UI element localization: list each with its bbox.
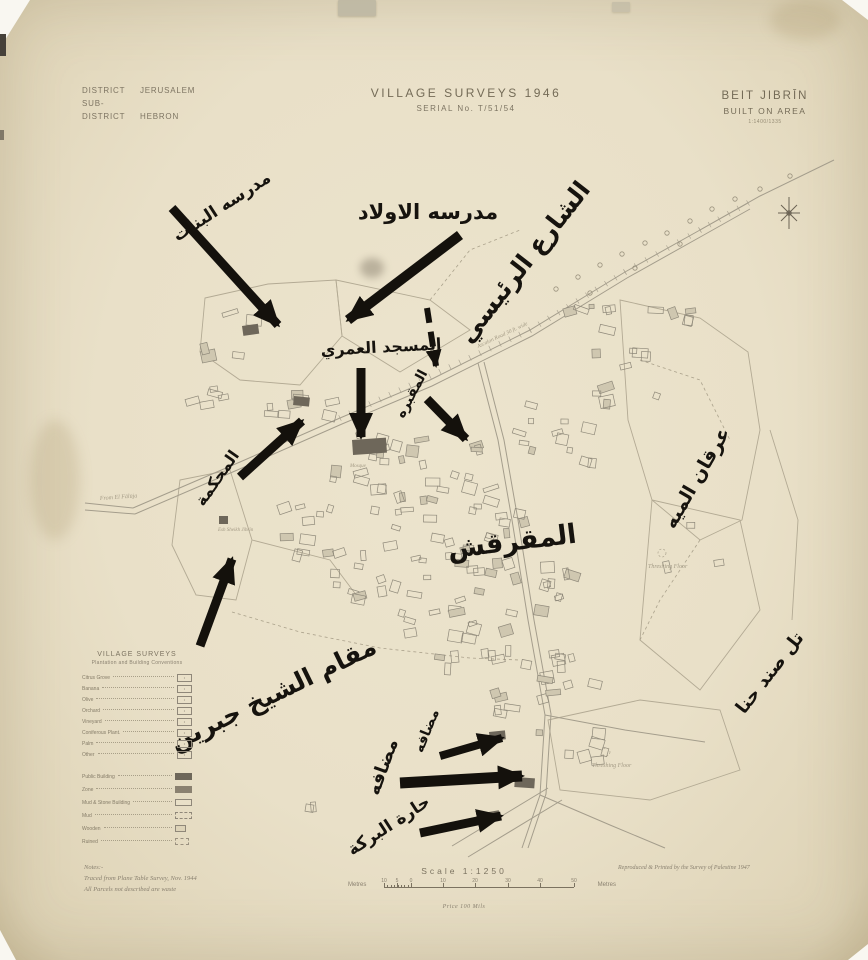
map-building [406, 445, 419, 458]
legend-row: Orchard• [82, 705, 192, 716]
legend-subtitle: Plantation and Building Conventions [82, 660, 192, 666]
map-building [620, 362, 632, 370]
map-building [429, 609, 440, 616]
road-tick [604, 281, 607, 286]
road-tick [699, 227, 702, 232]
map-building [267, 403, 273, 410]
map-building [444, 663, 451, 675]
arrow-madafa-2 [400, 776, 522, 783]
legend-leader [102, 687, 174, 688]
legend-row: Olive• [82, 694, 192, 705]
road-tick [645, 257, 648, 262]
map-building [333, 582, 340, 588]
annotation-boys-school: مدرسه الاولاد [358, 200, 498, 224]
legend-symbol: • [177, 740, 192, 748]
map-building [567, 447, 573, 453]
map-building [354, 563, 363, 570]
legend-swatch [175, 825, 186, 832]
arrow-cemetery [427, 399, 466, 439]
road-tick [399, 387, 402, 392]
scale-tick-label: 50 [571, 878, 577, 884]
map-building [521, 659, 532, 669]
legend-symbol: • [177, 751, 192, 759]
arrow-boys-school [348, 235, 460, 320]
scale-tick-label: 20 [472, 878, 478, 884]
legend-row: Coniferous Plant.• [82, 727, 192, 738]
map-building [498, 624, 513, 638]
map-building [455, 596, 466, 603]
scale-minor-tick [384, 885, 385, 888]
map-building [437, 486, 449, 493]
map-building [389, 580, 401, 593]
legend-swatch [175, 786, 192, 793]
scale-tick-label: 10 [381, 878, 387, 884]
legend-leader [123, 731, 174, 732]
map-building [419, 460, 427, 469]
price-note: Price 100 Mils [364, 904, 564, 910]
map-building [519, 440, 529, 446]
road-tick [656, 251, 659, 256]
map-building [543, 581, 551, 588]
legend-symbol: • [177, 707, 192, 715]
public-building [219, 516, 228, 524]
legend-symbol: • [177, 696, 192, 704]
legend-title: VILLAGE SURVEYS [82, 651, 192, 658]
map-building [510, 572, 521, 585]
map-building [404, 617, 416, 625]
map-building [629, 348, 636, 354]
legend-row: Wooden [82, 822, 192, 835]
map-building [419, 558, 426, 563]
map-building [581, 422, 597, 435]
map-building [471, 447, 482, 452]
map-building [383, 540, 398, 551]
map-building [528, 418, 533, 423]
map-building [714, 559, 724, 567]
scale-minor-tick [387, 885, 388, 888]
road-tick [666, 245, 669, 250]
map-building [360, 550, 366, 560]
road-tick [439, 369, 442, 374]
legend-leader [113, 676, 174, 677]
map-building [424, 575, 431, 580]
arrow-court [240, 421, 302, 477]
legend-row: Mud [82, 809, 192, 822]
map-building [483, 495, 500, 507]
legend-panel: VILLAGE SURVEYS Plantation and Building … [82, 651, 192, 848]
road-tick [595, 287, 598, 292]
map-label-sheikh-jibrin: Esh Sheikh Jibrīn [217, 528, 254, 533]
arrow-maqam [200, 559, 232, 646]
scale-bar-line: 10501020304050 [384, 886, 574, 888]
road-tick [624, 269, 627, 274]
map-building [322, 549, 333, 557]
legend-row-label: Other [82, 752, 95, 758]
map-building [464, 473, 473, 481]
legend-row-label: Wooden [82, 826, 101, 832]
map-building [685, 308, 696, 314]
printer-credit: Reproduced & Printed by the Survey of Pa… [618, 865, 750, 871]
public-building [293, 396, 310, 407]
map-building [333, 548, 347, 559]
map-building [376, 575, 386, 584]
map-building [592, 728, 606, 740]
legend-row-label: Olive [82, 697, 93, 703]
legend-row: Public Building [82, 770, 192, 783]
map-building [218, 394, 229, 401]
scale-unit-right: Metres [598, 882, 616, 888]
map-building [589, 304, 594, 308]
map-building [556, 433, 569, 446]
legend-row: Zone [82, 783, 192, 796]
map-building [563, 680, 573, 690]
map-building [423, 515, 436, 522]
map-building [483, 484, 499, 493]
legend-row-label: Public Building [82, 774, 115, 780]
tree-symbol [598, 263, 602, 267]
map-building [462, 480, 478, 495]
legend-row-label: Mud [82, 813, 92, 819]
map-building [450, 471, 459, 480]
legend-row-label: Zone [82, 787, 93, 793]
map-sheet: DISTRICTJERUSALEM SUB-DISTRICTHEBRON VIL… [0, 0, 868, 960]
legend-row: Ruined [82, 835, 192, 848]
road-tick [538, 322, 541, 327]
map-building [494, 705, 501, 715]
road-tick [688, 233, 691, 238]
map-building [420, 496, 427, 505]
map-building [568, 653, 575, 662]
legend-row: Palm• [82, 738, 192, 749]
threshing-floor-symbol [658, 549, 666, 557]
legend-leader [95, 814, 172, 815]
map-building [325, 397, 340, 406]
scale-tick-label: 30 [505, 878, 511, 884]
legend-leader [118, 775, 172, 776]
tree-symbol [788, 174, 792, 178]
legend-symbol: • [177, 718, 192, 726]
map-building [278, 410, 290, 418]
legend-leader [96, 698, 174, 699]
notes-line: All Parcels not described are waste [84, 884, 197, 895]
map-building [599, 324, 616, 335]
map-building [603, 305, 616, 313]
map-building [563, 306, 577, 318]
map-building [431, 533, 445, 543]
scale-tick-label: 40 [537, 878, 543, 884]
scale-minor-tick [394, 885, 395, 888]
map-label-from-el-faluja: From El Fālūja [99, 493, 138, 502]
notes-line: Traced from Plane Table Survey, Nov. 194… [84, 873, 197, 884]
map-building [391, 524, 401, 531]
legend-row-label: Ruined [82, 839, 98, 845]
map-building [414, 436, 429, 443]
scale-tick-label: 0 [410, 878, 413, 884]
map-building [577, 749, 592, 763]
map-building [474, 504, 481, 509]
map-building [474, 588, 484, 596]
map-building [277, 501, 292, 514]
map-label-threshing-floor: Threshing Floor [648, 564, 688, 570]
map-building [561, 419, 568, 424]
road-tick [576, 298, 579, 303]
scale-minor-tick [391, 885, 392, 888]
map-building [280, 533, 293, 541]
legend-row: Citrus Grove• [82, 672, 192, 683]
map-building [528, 446, 536, 454]
map-building [185, 396, 200, 406]
map-building [434, 654, 445, 661]
map-building [525, 401, 538, 410]
tree-symbol [554, 287, 558, 291]
tree-symbol [620, 252, 624, 256]
map-building [200, 400, 215, 410]
public-building [352, 438, 387, 455]
notes-title: Notes:- [84, 862, 197, 873]
legend-leader [96, 742, 174, 743]
legend-symbol: • [177, 685, 192, 693]
map-building [539, 579, 551, 592]
arrow-madafa-1 [440, 738, 502, 756]
legend-row: Banana• [82, 683, 192, 694]
scale-minor-tick [398, 885, 399, 888]
threshing-floor-symbol [602, 748, 610, 756]
map-building [426, 495, 438, 503]
tree-symbol [643, 241, 647, 245]
legend-leader [103, 709, 174, 710]
legend-leader [96, 788, 172, 789]
legend-leader [104, 827, 172, 828]
map-building [512, 428, 526, 436]
map-building [448, 607, 465, 617]
legend-symbol: • [177, 729, 192, 737]
map-building [536, 730, 543, 736]
legend-swatch [175, 773, 192, 780]
scale-tick-label: 10 [440, 878, 446, 884]
map-building [380, 458, 389, 465]
legend-row: Mud & Stone Building [82, 796, 192, 809]
road-tick [557, 310, 560, 315]
map-building [592, 349, 601, 358]
scale-minor-tick [401, 885, 402, 888]
tree-symbol [710, 207, 714, 211]
map-building [502, 557, 515, 570]
tree-symbol [758, 187, 762, 191]
legend-swatch [175, 838, 189, 845]
legend-row-label: Orchard [82, 708, 100, 714]
map-building [579, 456, 592, 467]
legend-leader [105, 720, 174, 721]
map-building [377, 586, 387, 598]
legend-plantation-rows: Citrus Grove•Banana•Olive•Orchard•Vineya… [82, 672, 192, 760]
map-building [302, 516, 315, 525]
map-building [505, 646, 510, 657]
legend-row: Vineyard• [82, 716, 192, 727]
map-building [540, 561, 554, 573]
legend-swatch [175, 799, 192, 806]
tree-symbol [733, 197, 737, 201]
legend-leader [133, 801, 172, 802]
map-building [300, 534, 316, 546]
legend-leader [98, 753, 174, 754]
arrow-birkeh [420, 816, 501, 833]
map-building [469, 507, 477, 515]
scale-minor-tick [408, 885, 409, 888]
legend-row: Other• [82, 749, 192, 760]
map-building [398, 456, 405, 464]
map-building [401, 507, 414, 512]
map-building [474, 568, 485, 576]
map-building [295, 504, 305, 510]
road-tick [547, 316, 550, 321]
map-building [207, 389, 222, 399]
map-building [353, 468, 368, 478]
legend-leader [101, 840, 172, 841]
tree-symbol [688, 219, 692, 223]
map-building [565, 750, 574, 759]
map-building [534, 604, 549, 617]
map-building [232, 351, 244, 359]
map-building [605, 306, 612, 314]
map-building [557, 661, 565, 673]
map-building [395, 509, 401, 515]
map-label-mosque: Mosque [349, 464, 367, 469]
legend-row-label: Vineyard [82, 719, 102, 725]
legend-row-label: Citrus Grove [82, 675, 110, 681]
legend-row-label: Coniferous Plant. [82, 730, 120, 736]
scale-tick-label: 5 [396, 878, 399, 884]
road-tick [459, 360, 462, 365]
map-building [377, 484, 386, 494]
map-building [317, 511, 324, 517]
public-building [242, 324, 259, 336]
legend-building-rows: Public BuildingZoneMud & Stone BuildingM… [82, 770, 192, 848]
scale-unit-left: Metres [348, 882, 366, 888]
scale-bar: Metres 10501020304050 Metres [348, 876, 616, 894]
road-tick [614, 275, 617, 280]
map-building [641, 351, 650, 361]
map-building [326, 504, 333, 513]
legend-row-label: Banana [82, 686, 99, 692]
map-building [653, 392, 661, 400]
road-tick [449, 364, 452, 369]
map-building [551, 653, 566, 666]
map-label-threshing-floor: Threshing Floor [592, 763, 632, 769]
map-building [398, 609, 406, 617]
map-building [370, 506, 379, 515]
notes-block: Notes:- Traced from Plane Table Survey, … [84, 862, 197, 895]
legend-symbol: • [177, 674, 192, 682]
map-building [485, 568, 497, 577]
map-building [222, 309, 239, 318]
map-building [404, 628, 417, 638]
scale-minor-tick [404, 885, 405, 888]
map-building [632, 348, 648, 358]
legend-row-label: Mud & Stone Building [82, 800, 130, 806]
map-building [667, 307, 678, 320]
map-building [264, 411, 278, 418]
map-building [368, 454, 377, 461]
tree-symbol [576, 275, 580, 279]
scale-title: Scale 1:1250 [364, 866, 564, 876]
legend-row-label: Palm [82, 741, 93, 747]
map-building [687, 522, 695, 528]
map-building [588, 678, 603, 689]
map-building [407, 590, 422, 598]
map-building [425, 478, 440, 486]
tree-symbol [665, 231, 669, 235]
map-building [305, 804, 314, 813]
map-building [597, 381, 614, 394]
map-building [546, 689, 561, 696]
map-building [390, 439, 402, 452]
map-building [506, 609, 518, 617]
legend-swatch [175, 812, 192, 819]
